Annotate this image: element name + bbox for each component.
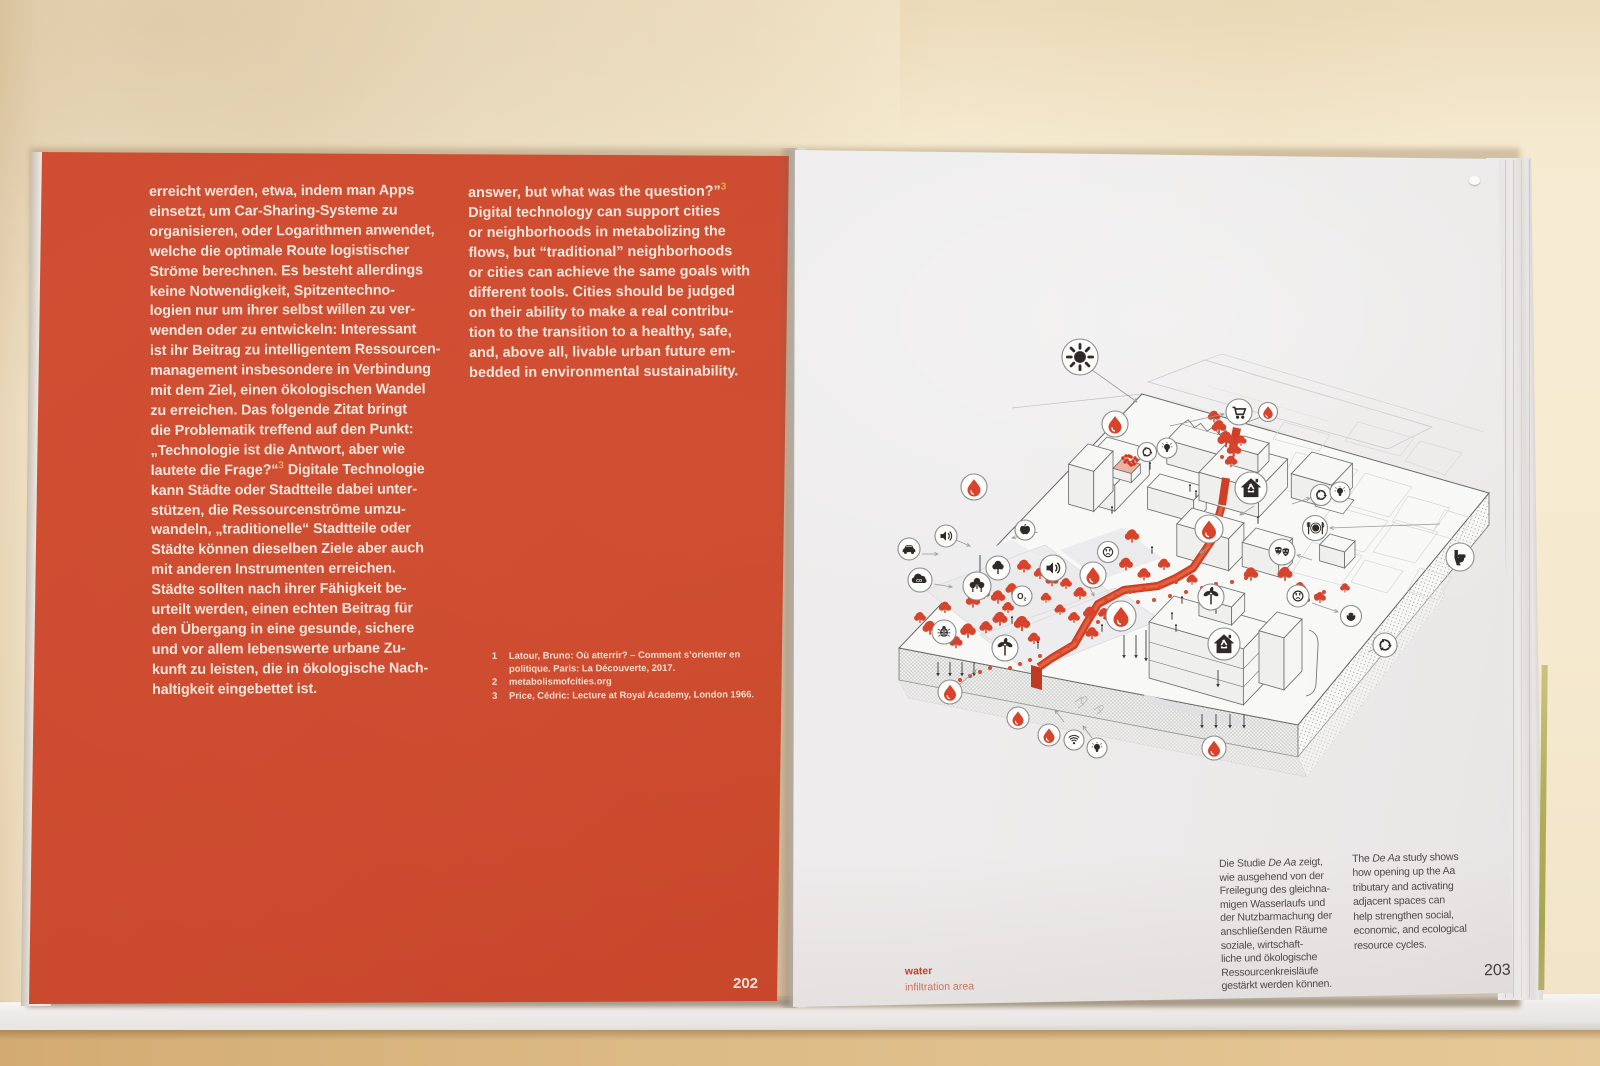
svg-text:2: 2 [1024, 597, 1027, 603]
svg-text:CO: CO [916, 578, 923, 583]
